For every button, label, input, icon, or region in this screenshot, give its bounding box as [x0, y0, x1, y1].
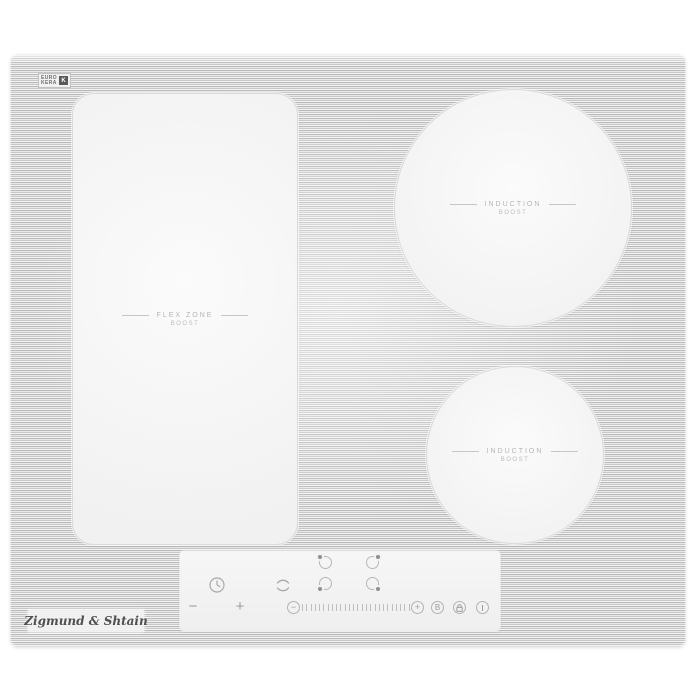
induction-bottom-label-line2: BOOST: [501, 457, 530, 463]
slider-tick: [336, 604, 337, 611]
glass-brand-badge: EURO KERA K: [38, 73, 71, 88]
badge-text-line2: KERA: [41, 81, 57, 86]
touch-control-panel: − + − + B: [180, 551, 500, 631]
zone-position-dot: [318, 587, 322, 591]
slider-tick: [362, 604, 363, 611]
bridge-arcs-icon: [273, 576, 293, 595]
lock-icon: [456, 604, 463, 612]
slider-tick: [353, 604, 354, 611]
slider-tick: [319, 604, 320, 611]
slider-tick: [328, 604, 329, 611]
zone-select-rear-right-key[interactable]: [366, 577, 379, 590]
slider-tick: [400, 604, 401, 611]
zone-select-front-right-key[interactable]: [366, 556, 379, 569]
zone-select-rear-left-key[interactable]: [319, 577, 332, 590]
label-dash-left: [122, 315, 149, 316]
slider-tick: [387, 604, 388, 611]
child-lock-key[interactable]: [453, 601, 466, 614]
power-slider-minus-key[interactable]: −: [287, 601, 300, 614]
slider-tick: [357, 604, 358, 611]
slider-tick: [345, 604, 346, 611]
bridge-zone-key[interactable]: [273, 576, 293, 595]
zone-position-dot: [376, 587, 380, 591]
label-dash-left: [452, 451, 479, 452]
slider-tick: [404, 604, 405, 611]
slider-tick: [379, 604, 380, 611]
zone-position-dot: [376, 555, 380, 559]
timer-minus-key[interactable]: −: [186, 600, 200, 614]
slider-tick: [396, 604, 397, 611]
label-dash-right: [221, 315, 248, 316]
induction-bottom-label-line1: INDUCTION: [487, 448, 544, 455]
timer-key[interactable]: [208, 576, 226, 594]
power-key[interactable]: [476, 601, 489, 614]
slider-tick: [370, 604, 371, 611]
brand-plate: Zigmund & Shtain: [28, 610, 144, 632]
zone-position-dot: [318, 555, 322, 559]
boost-key[interactable]: B: [431, 601, 444, 614]
slider-tick: [383, 604, 384, 611]
slider-tick: [302, 604, 303, 611]
flex-cooking-zone: FLEX ZONE BOOST: [72, 93, 298, 545]
label-dash-right: [549, 204, 576, 205]
slider-tick: [315, 604, 316, 611]
slider-tick: [311, 604, 312, 611]
slider-tick: [375, 604, 376, 611]
slider-tick: [349, 604, 350, 611]
label-dash-left: [450, 204, 477, 205]
badge-mark-icon: K: [59, 76, 68, 85]
flex-zone-label: FLEX ZONE BOOST: [122, 312, 249, 327]
flex-zone-label-line2: BOOST: [171, 321, 200, 327]
flex-zone-label-line1: FLEX ZONE: [157, 312, 214, 319]
slider-tick: [392, 604, 393, 611]
power-slider-ticks[interactable]: [302, 603, 410, 611]
slider-tick: [323, 604, 324, 611]
label-dash-right: [551, 451, 578, 452]
zone-select-front-left-key[interactable]: [319, 556, 332, 569]
induction-top-label: INDUCTION BOOST: [450, 201, 577, 216]
clock-icon: [208, 576, 226, 594]
slider-tick: [366, 604, 367, 611]
power-slider-plus-key[interactable]: +: [411, 601, 424, 614]
induction-zone-top-right: INDUCTION BOOST: [394, 89, 632, 327]
induction-top-label-line1: INDUCTION: [485, 201, 542, 208]
slider-tick: [340, 604, 341, 611]
induction-bottom-label: INDUCTION BOOST: [452, 448, 579, 463]
induction-zone-bottom-right: INDUCTION BOOST: [426, 366, 604, 544]
slider-tick: [332, 604, 333, 611]
power-bar-icon: [482, 605, 484, 611]
slider-tick: [306, 604, 307, 611]
induction-top-label-line2: BOOST: [499, 210, 528, 216]
slider-tick: [409, 604, 410, 611]
timer-plus-key[interactable]: +: [233, 600, 247, 614]
brand-name: Zigmund & Shtain: [24, 614, 147, 628]
cooktop-surface: EURO KERA K FLEX ZONE BOOST INDUCTION BO…: [10, 54, 686, 647]
